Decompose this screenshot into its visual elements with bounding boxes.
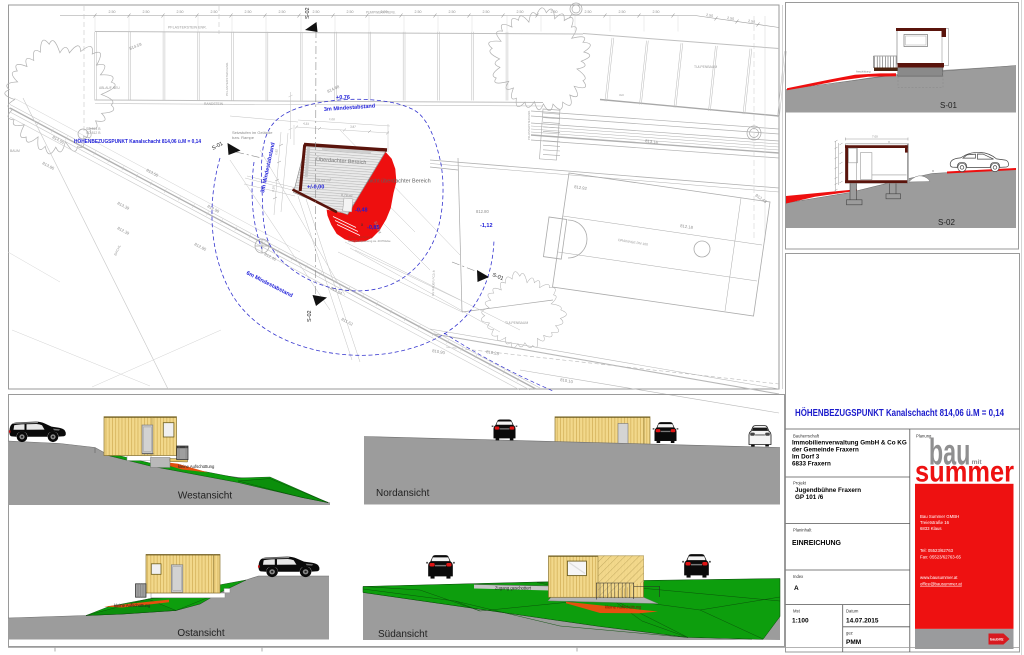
- svg-text:Mst: Mst: [793, 609, 801, 614]
- svg-text:PFLASTERSTEIN ENR.: PFLASTERSTEIN ENR.: [225, 62, 229, 96]
- svg-text:S-02: S-02: [307, 310, 313, 322]
- svg-text:Datum: Datum: [846, 609, 859, 614]
- svg-text:1,00: 1,00: [329, 117, 335, 121]
- svg-text:2.50: 2.50: [347, 10, 354, 14]
- svg-text:PUMPWERK TIEFB.: PUMPWERK TIEFB.: [366, 11, 396, 15]
- svg-text:V: V: [888, 140, 890, 144]
- svg-text:RANDSTEIN: RANDSTEIN: [204, 102, 224, 106]
- svg-text:der Gemeinde Fraxern: der Gemeinde Fraxern: [792, 447, 859, 454]
- svg-text:2.50: 2.50: [279, 10, 286, 14]
- svg-text:www.bausummer.at: www.bausummer.at: [920, 575, 958, 580]
- svg-text:TULPENBAUM: TULPENBAUM: [505, 321, 528, 325]
- svg-text:-0,48: -0,48: [355, 208, 368, 214]
- svg-text:A: A: [794, 585, 799, 592]
- svg-text:S-02: S-02: [305, 7, 311, 19]
- svg-text:HÖHENBEZUGSPUNKT Kanalschacht: HÖHENBEZUGSPUNKT Kanalschacht 814,06 ü.M…: [795, 406, 1004, 419]
- svg-text:2.50: 2.50: [619, 10, 626, 14]
- svg-text:2.50: 2.50: [211, 10, 218, 14]
- svg-text:2.50: 2.50: [415, 10, 422, 14]
- svg-text:2.50: 2.50: [313, 10, 320, 14]
- svg-text:V: V: [932, 169, 934, 173]
- svg-text:Südansicht: Südansicht: [378, 629, 428, 640]
- svg-text:2.50: 2.50: [653, 10, 660, 14]
- svg-text:office@bausummer.at: office@bausummer.at: [920, 582, 963, 587]
- svg-text:16,02 m²: 16,02 m²: [316, 179, 332, 183]
- svg-text:Bau Summer GMBH: Bau Summer GMBH: [920, 514, 959, 519]
- svg-text:Index: Index: [793, 574, 804, 579]
- svg-text:-1,12: -1,12: [480, 223, 493, 229]
- svg-text:nicht überdachter Bereich: nicht überdachter Bereich: [368, 179, 431, 185]
- svg-text:3,87: 3,87: [350, 125, 356, 129]
- svg-text:7.00: 7.00: [872, 135, 878, 139]
- svg-text:2.50: 2.50: [245, 10, 252, 14]
- svg-text:gez: gez: [846, 631, 853, 636]
- svg-text:4,33: 4,33: [303, 122, 309, 126]
- svg-text:baublitz: baublitz: [990, 638, 1004, 642]
- svg-text:6833 Fraxern: 6833 Fraxern: [792, 461, 831, 468]
- svg-text:kleine Aufschüttung: kleine Aufschüttung: [605, 605, 642, 610]
- svg-text:14.07.2015: 14.07.2015: [846, 618, 879, 625]
- svg-text:Immobilienverwaltung GmbH & Co: Immobilienverwaltung GmbH & Co KG: [792, 440, 907, 447]
- svg-text:Geländeanpassung ca. 40 Pflöck: Geländeanpassung ca. 40 Pflöcke: [348, 239, 391, 243]
- svg-text:2.50: 2.50: [517, 10, 524, 14]
- svg-text:Zugang geschottert: Zugang geschottert: [495, 586, 532, 591]
- svg-text:bzw. Rampe: bzw. Rampe: [232, 135, 255, 140]
- svg-text:Nordansicht: Nordansicht: [376, 488, 430, 499]
- svg-text:Westansicht: Westansicht: [178, 491, 233, 502]
- svg-text:Tel: 05523/62763: Tel: 05523/62763: [920, 548, 954, 553]
- svg-text:Planinhalt: Planinhalt: [793, 528, 812, 533]
- svg-text:3,10: 3,10: [271, 186, 276, 193]
- svg-text:HÖHENBEZUGSPUNKT Kanalschacht: HÖHENBEZUGSPUNKT Kanalschacht 814,06 ü.M…: [74, 138, 202, 145]
- svg-text:PFLASTERSTEIN ENR.: PFLASTERSTEIN ENR.: [168, 26, 207, 30]
- svg-text:BAUM: BAUM: [10, 149, 20, 153]
- svg-text:Projekt: Projekt: [793, 481, 807, 486]
- svg-text:2.50: 2.50: [177, 10, 184, 14]
- svg-text:SD 812 B: SD 812 B: [86, 131, 101, 135]
- svg-text:6833 Klaus: 6833 Klaus: [920, 526, 942, 531]
- svg-text:TULPENBAUM: TULPENBAUM: [694, 65, 717, 69]
- svg-text:-0,85: -0,85: [367, 225, 380, 231]
- svg-text:1:100: 1:100: [792, 618, 809, 625]
- svg-text:Jugendbühne Fraxern: Jugendbühne Fraxern: [795, 487, 861, 494]
- svg-text:PFLASTERSTEIN ENR.: PFLASTERSTEIN ENR.: [527, 110, 531, 140]
- svg-text:Ostansicht: Ostansicht: [177, 628, 224, 639]
- svg-text:PMM: PMM: [846, 639, 861, 646]
- svg-text:S-02: S-02: [938, 218, 955, 227]
- svg-text:+0,76: +0,76: [336, 95, 350, 101]
- svg-text:S-01: S-01: [940, 101, 957, 110]
- svg-text:GP 101 /6: GP 101 /6: [795, 494, 824, 501]
- svg-text:Anschüttung: Anschüttung: [856, 70, 871, 74]
- svg-text:Fax: 05523/62763-65: Fax: 05523/62763-65: [920, 555, 961, 560]
- svg-text:Im Dorf 3: Im Dorf 3: [792, 454, 820, 461]
- svg-text:2.50: 2.50: [109, 10, 116, 14]
- svg-text:2.50: 2.50: [449, 10, 456, 14]
- svg-text:812.80: 812.80: [476, 209, 489, 214]
- svg-text:summer: summer: [915, 456, 1014, 489]
- svg-text:Bauherrschaft: Bauherrschaft: [793, 434, 820, 439]
- svg-text:2.50: 2.50: [585, 10, 592, 14]
- svg-text:+/-0,00: +/-0,00: [307, 185, 324, 191]
- svg-text:kleine Aufschüttung: kleine Aufschüttung: [178, 464, 215, 469]
- svg-text:3x0: 3x0: [619, 93, 624, 97]
- svg-text:Treietstraße 16: Treietstraße 16: [920, 520, 950, 525]
- svg-text:2.50: 2.50: [483, 10, 490, 14]
- svg-text:kleine Aufschüttung: kleine Aufschüttung: [114, 603, 151, 608]
- svg-text:2.50: 2.50: [143, 10, 150, 14]
- svg-text:EINREICHUNG: EINREICHUNG: [792, 540, 842, 547]
- svg-text:ABLAUF NEU: ABLAUF NEU: [99, 86, 120, 90]
